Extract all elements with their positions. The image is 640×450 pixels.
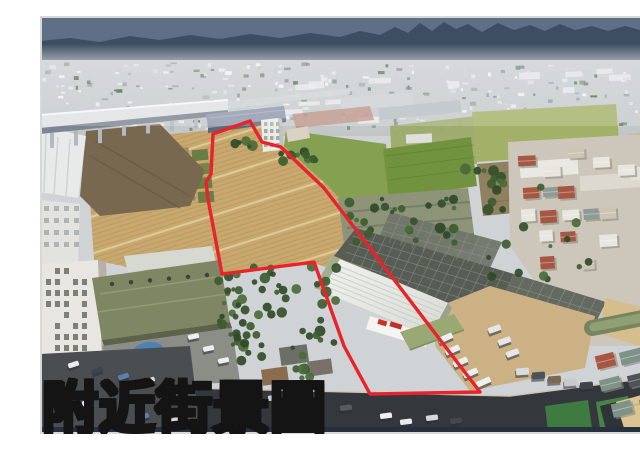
- caption-text: 附近街景圖: [42, 382, 327, 434]
- apartment-building: [40, 260, 102, 364]
- aerial-photo-scene: [40, 16, 640, 434]
- left-warehouse-roof: [40, 126, 86, 198]
- aerial-photo: 附近街景圖: [40, 16, 640, 434]
- atmospheric-haze: [40, 60, 640, 126]
